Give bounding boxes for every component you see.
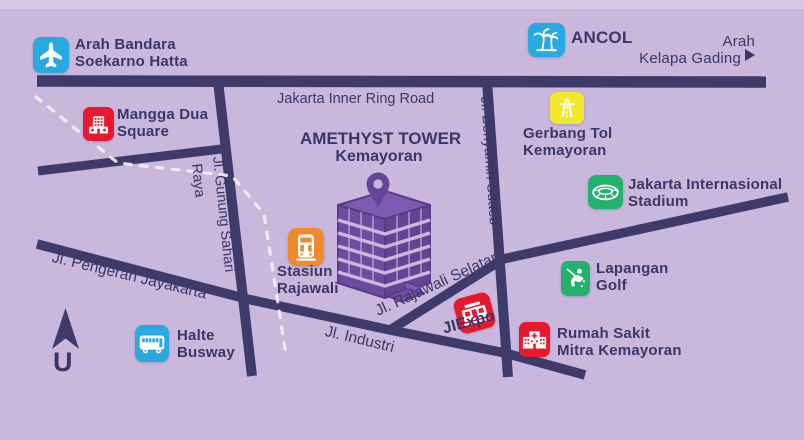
compass-north-label: U bbox=[53, 347, 73, 378]
poi-label-gerbang-tol: Gerbang TolKemayoran bbox=[523, 126, 612, 159]
road-label-inner-ring: Jakarta Inner Ring Road bbox=[277, 92, 434, 107]
map-title: AMETHYST TOWER bbox=[300, 130, 458, 148]
hospital-icon bbox=[519, 322, 550, 357]
location-map: AMETHYST TOWER Kemayoran Jakarta Inner R… bbox=[0, 0, 804, 440]
poi-label-bandara: Arah BandaraSoekarno Hatta bbox=[75, 37, 188, 70]
compass-north-arrow bbox=[52, 308, 79, 349]
map-subtitle: Kemayoran bbox=[300, 148, 458, 165]
airplane-icon bbox=[33, 37, 69, 73]
poi-label-ancol: ANCOL bbox=[571, 30, 632, 47]
arrow-right-icon bbox=[745, 49, 755, 61]
poi-label-mangga-dua: Mangga DuaSquare bbox=[117, 107, 208, 140]
poi-label-halte: HalteBusway bbox=[177, 328, 235, 361]
bus-icon bbox=[135, 325, 169, 362]
poi-label-stasiun: StasiunRajawali bbox=[277, 264, 339, 297]
poi-label-rs-mitra: Rumah SakitMitra Kemayoran bbox=[557, 326, 682, 359]
palm-trees-icon bbox=[528, 23, 565, 57]
poi-label-jis: Jakarta InternasionalStadium bbox=[628, 177, 782, 210]
golfer-icon bbox=[561, 261, 590, 296]
mall-icon bbox=[83, 107, 114, 141]
road-inner-ring bbox=[37, 81, 766, 82]
road-label-gunung-sahari-raya: Raya bbox=[188, 163, 206, 198]
train-icon bbox=[288, 228, 324, 266]
poi-label-kelapa-gading: Arah Kelapa Gading bbox=[630, 34, 755, 67]
stadium-icon bbox=[588, 175, 623, 209]
highway-icon bbox=[550, 92, 584, 124]
poi-label-golf: LapanganGolf bbox=[596, 261, 668, 294]
